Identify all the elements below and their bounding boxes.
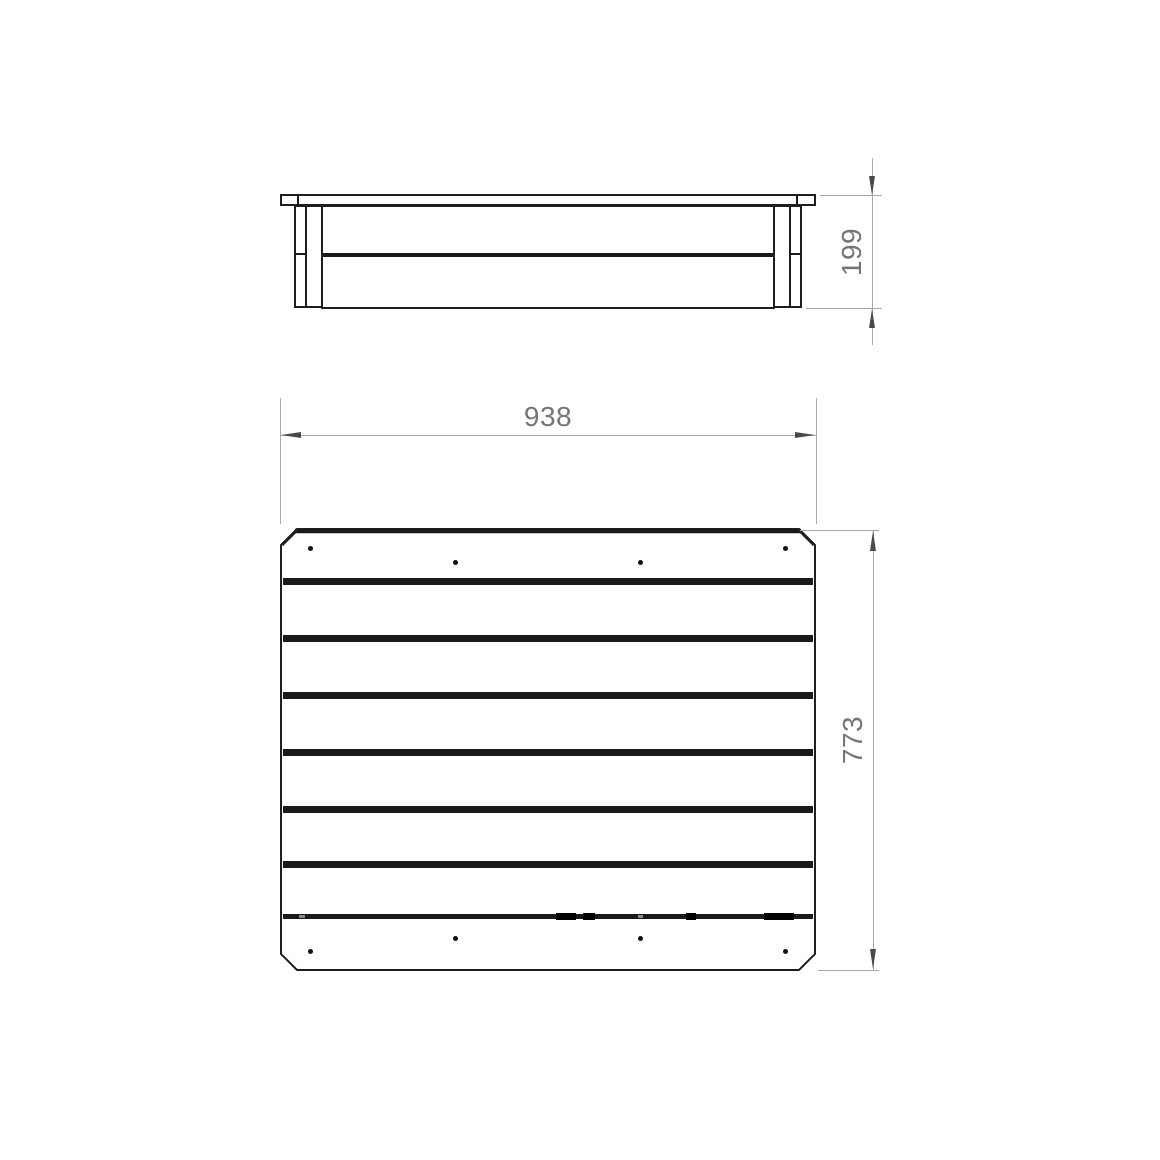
cap-end-joint-right — [796, 195, 798, 206]
arrowhead-down-icon — [870, 949, 876, 969]
dim-label-height: 199 — [838, 228, 866, 276]
arrowhead-left-icon — [281, 432, 301, 438]
extension-line-top — [800, 530, 879, 531]
screw-hole-dot — [638, 936, 643, 941]
extension-line-left — [280, 398, 281, 524]
plank-separator — [283, 806, 813, 813]
joint-dash — [556, 913, 576, 920]
screw-hole-dot — [783, 949, 788, 954]
plank-separator — [283, 749, 813, 756]
technical-drawing-canvas: 199 — [0, 0, 1160, 1160]
plank-separator — [283, 692, 813, 699]
cap-end-joint-left — [297, 195, 299, 206]
dim-label-depth: 773 — [839, 716, 867, 764]
plank-separator — [283, 861, 813, 868]
screw-hole-dot — [453, 560, 458, 565]
screw-hole-dot — [638, 560, 643, 565]
cap-rail — [280, 194, 816, 206]
extension-line-bottom — [818, 970, 879, 971]
dimension-line-vertical — [873, 530, 874, 970]
plan-view: 938 773 — [0, 360, 1160, 1060]
joint-dash — [686, 913, 696, 920]
arrowhead-up-icon — [869, 309, 875, 328]
dimension-line-horizontal — [280, 435, 816, 436]
screw-hole-dot — [308, 546, 313, 551]
dim-label-width: 938 — [524, 403, 572, 431]
joint-dash — [764, 913, 794, 920]
joint-gap — [299, 915, 305, 918]
plank-separator — [283, 578, 813, 585]
side-plank-divider — [323, 253, 773, 258]
screw-hole-dot — [308, 949, 313, 954]
screw-hole-dot — [783, 546, 788, 551]
extension-line-right — [816, 398, 817, 524]
joint-dash — [583, 913, 595, 920]
side-elevation-view: 199 — [0, 0, 1160, 360]
arrowhead-right-icon — [795, 432, 815, 438]
arrowhead-down-icon — [869, 176, 875, 195]
screw-hole-dot — [453, 936, 458, 941]
post-outer-right — [789, 205, 802, 308]
joint-gap — [638, 915, 643, 918]
arrowhead-up-icon — [870, 531, 876, 551]
plank-separator — [283, 635, 813, 642]
post-outer-right-joint — [789, 253, 802, 255]
plank-separator-thin — [283, 914, 813, 919]
